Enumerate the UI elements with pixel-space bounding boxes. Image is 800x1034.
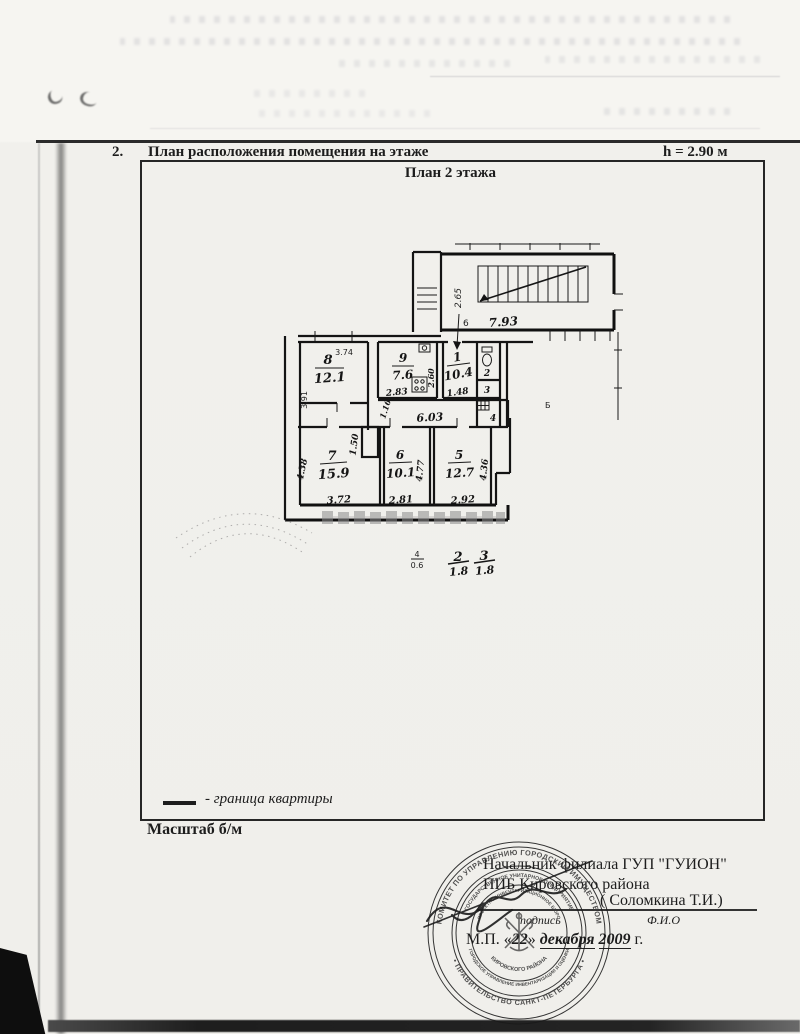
approver-title-line1: Начальник филиала ГУП "ГУИОН" [483, 856, 727, 874]
page-bleed-through [430, 76, 780, 77]
scan-fold-line-top [36, 140, 800, 143]
stamp-inner-bottom-text: КИРОВСКОГО РАЙОНА [489, 956, 549, 974]
plan-title: План 2 этажа [140, 165, 761, 182]
stamp-date-line: М.П. «22» декабря 2009 г. [466, 931, 643, 949]
fio-caption: Ф.И.О [647, 913, 680, 928]
date-prefix: М.П. « [466, 931, 512, 948]
section-number: 2. [112, 144, 123, 161]
page-bleed-through [120, 38, 740, 45]
ink-smudge [46, 88, 64, 106]
scan-fold-shadow-left [55, 143, 67, 1034]
ink-smudge [78, 90, 98, 108]
date-day-handwritten: 22 [512, 931, 528, 948]
ceiling-height-note: h = 2.90 м [663, 144, 728, 161]
date-year: 2009 [599, 931, 631, 949]
section-title: План расположения помещения на этаже [148, 144, 428, 161]
apartment-boundary-legend-line [163, 801, 196, 805]
page-bleed-through [545, 56, 760, 63]
svg-text:КИРОВСКОГО РАЙОНА: КИРОВСКОГО РАЙОНА [489, 956, 549, 974]
scanned-document-page: 2. План расположения помещения на этаже … [0, 0, 800, 1034]
svg-text:• ПРАВИТЕЛЬСТВО САНКТ-ПЕТЕРБУР: • ПРАВИТЕЛЬСТВО САНКТ-ПЕТЕРБУРГА • [451, 958, 588, 1007]
signature-caption: подпись [520, 913, 561, 928]
scan-edge-bottom [48, 1020, 800, 1032]
page-bleed-through [250, 110, 430, 117]
page-bleed-through [170, 16, 730, 23]
date-suffix: г. [631, 931, 644, 948]
scale-label: Масштаб б/м [147, 821, 242, 839]
page-bleed-through [245, 90, 365, 97]
stamp-middle-bottom-text: ГОРОДСКОЕ УПРАВЛЕНИЕ ИНВЕНТАРИЗАЦИИ И ОЦ… [468, 948, 571, 987]
stamp-outer-bottom-text: • ПРАВИТЕЛЬСТВО САНКТ-ПЕТЕРБУРГА • [451, 958, 588, 1007]
page-bleed-through [330, 60, 510, 67]
date-mid: » [528, 931, 540, 948]
page-bleed-through [150, 128, 760, 129]
date-month: декабря [540, 931, 595, 949]
signature-rule [477, 909, 757, 911]
approver-name: ( Соломкина Т.И.) [600, 892, 723, 910]
apartment-boundary-legend-label: - граница квартиры [205, 791, 333, 808]
plan-frame [140, 160, 765, 821]
svg-text:ГОРОДСКОЕ УПРАВЛЕНИЕ ИНВЕНТАРИ: ГОРОДСКОЕ УПРАВЛЕНИЕ ИНВЕНТАРИЗАЦИИ И ОЦ… [468, 948, 571, 987]
page-bleed-through [600, 108, 730, 115]
scan-fold-line-left [38, 143, 40, 1034]
